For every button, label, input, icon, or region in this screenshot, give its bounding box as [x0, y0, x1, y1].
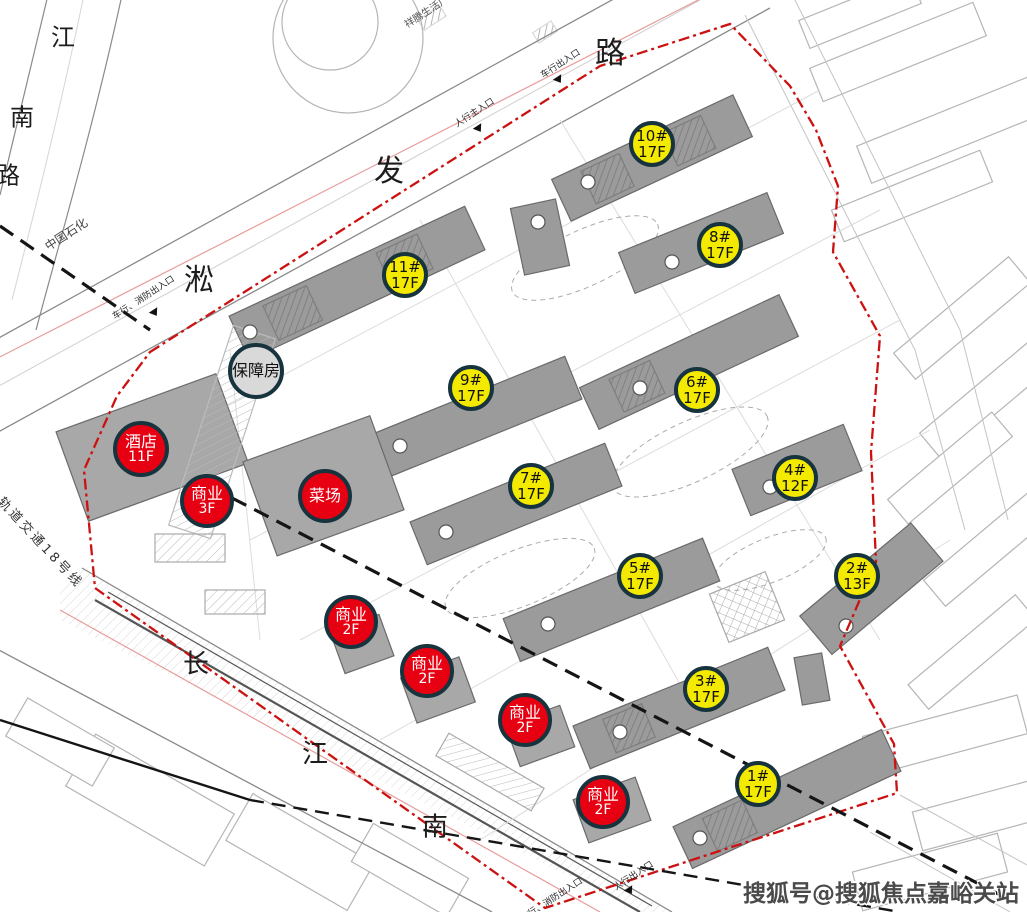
road-name-changjiang-char: 长: [183, 644, 209, 681]
marker-building-4: 4# 12F: [772, 455, 818, 501]
road-name-changjiang-char: 江: [302, 734, 328, 771]
facility-name: 商业: [335, 606, 367, 623]
marker-hotel: 酒店 11F: [113, 421, 169, 477]
building-floors: 17F: [391, 275, 419, 291]
road-name-songfa-char: 淞: [184, 255, 214, 299]
marker-building-6: 6# 17F: [674, 367, 720, 413]
marker-commercial-3f: 商业 3F: [180, 474, 234, 528]
road-name-jiangnan-char: 江: [51, 18, 75, 53]
road-name-songfa-char: 发: [374, 146, 404, 190]
building-number: 10#: [636, 128, 668, 144]
marker-commercial-2f-2: 商业 2F: [400, 644, 454, 698]
building-floors: 17F: [626, 576, 654, 592]
facility-floors: 3F: [199, 502, 216, 517]
building-number: 2#: [846, 560, 868, 576]
building-floors: 12F: [781, 478, 809, 494]
marker-building-8: 8# 17F: [697, 222, 743, 268]
building-floors: 17F: [457, 388, 485, 404]
building-number: 3#: [695, 673, 717, 689]
building-number: 5#: [629, 560, 651, 576]
building-number: 9#: [460, 372, 482, 388]
building-floors: 17F: [692, 689, 720, 705]
marker-building-3: 3# 17F: [683, 666, 729, 712]
facility-name: 商业: [587, 786, 619, 803]
road-name-jiangnan-char: 南: [10, 98, 34, 133]
building-floors: 13F: [843, 576, 871, 592]
facility-floors: 2F: [343, 623, 360, 638]
building-number: 1#: [747, 768, 769, 784]
road-name-songfa-char: 路: [595, 28, 625, 72]
watermark: 搜狐号@搜狐焦点嘉峪关站: [743, 874, 1019, 908]
building-floors: 17F: [683, 390, 711, 406]
marker-commercial-2f-4: 商业 2F: [576, 775, 630, 829]
building-floors: 17F: [517, 486, 545, 502]
building-number: 6#: [686, 374, 708, 390]
facility-floors: 11F: [128, 450, 154, 465]
building-floors: 17F: [638, 144, 666, 160]
site-plan-page: 江 南 路 淞 发 路 长 江 南 中国石化 祥腾生活广场 车行出入口 人行主入…: [0, 0, 1027, 912]
marker-building-2: 2# 13F: [834, 553, 880, 599]
marker-commercial-2f-1: 商业 2F: [324, 595, 378, 649]
building-floors: 17F: [706, 245, 734, 261]
building-number: 7#: [520, 470, 542, 486]
marker-commercial-2f-3: 商业 2F: [498, 693, 552, 747]
facility-name: 菜场: [309, 487, 341, 504]
facility-name: 商业: [411, 655, 443, 672]
facility-floors: 2F: [595, 803, 612, 818]
road-name-jiangnan-char: 路: [0, 156, 20, 191]
building-number: 11#: [389, 259, 421, 275]
building-number: 8#: [709, 229, 731, 245]
marker-building-11: 11# 17F: [382, 252, 428, 298]
building-floors: 17F: [744, 784, 772, 800]
marker-building-1: 1# 17F: [735, 761, 781, 807]
marker-building-5: 5# 17F: [617, 553, 663, 599]
marker-building-9: 9# 17F: [448, 365, 494, 411]
facility-name: 保障房: [232, 362, 280, 379]
facility-name: 酒店: [125, 433, 157, 450]
facility-floors: 2F: [419, 672, 436, 687]
road-name-changjiang-char: 南: [422, 807, 448, 844]
facility-floors: 2F: [517, 721, 534, 736]
marker-building-10: 10# 17F: [629, 121, 675, 167]
marker-market: 菜场: [298, 469, 352, 523]
marker-affordable-housing: 保障房: [228, 343, 284, 399]
facility-name: 商业: [191, 485, 223, 502]
building-number: 4#: [784, 462, 806, 478]
facility-name: 商业: [509, 704, 541, 721]
marker-building-7: 7# 17F: [508, 463, 554, 509]
